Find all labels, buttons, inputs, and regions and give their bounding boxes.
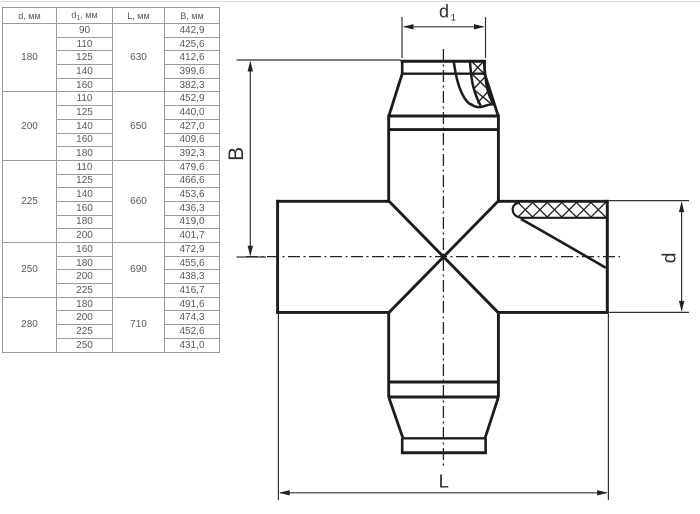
svg-text:L: L <box>439 471 449 492</box>
svg-text:1: 1 <box>451 13 456 24</box>
svg-text:d: d <box>659 252 681 263</box>
svg-text:d: d <box>439 2 449 22</box>
svg-text:B: B <box>225 147 248 161</box>
